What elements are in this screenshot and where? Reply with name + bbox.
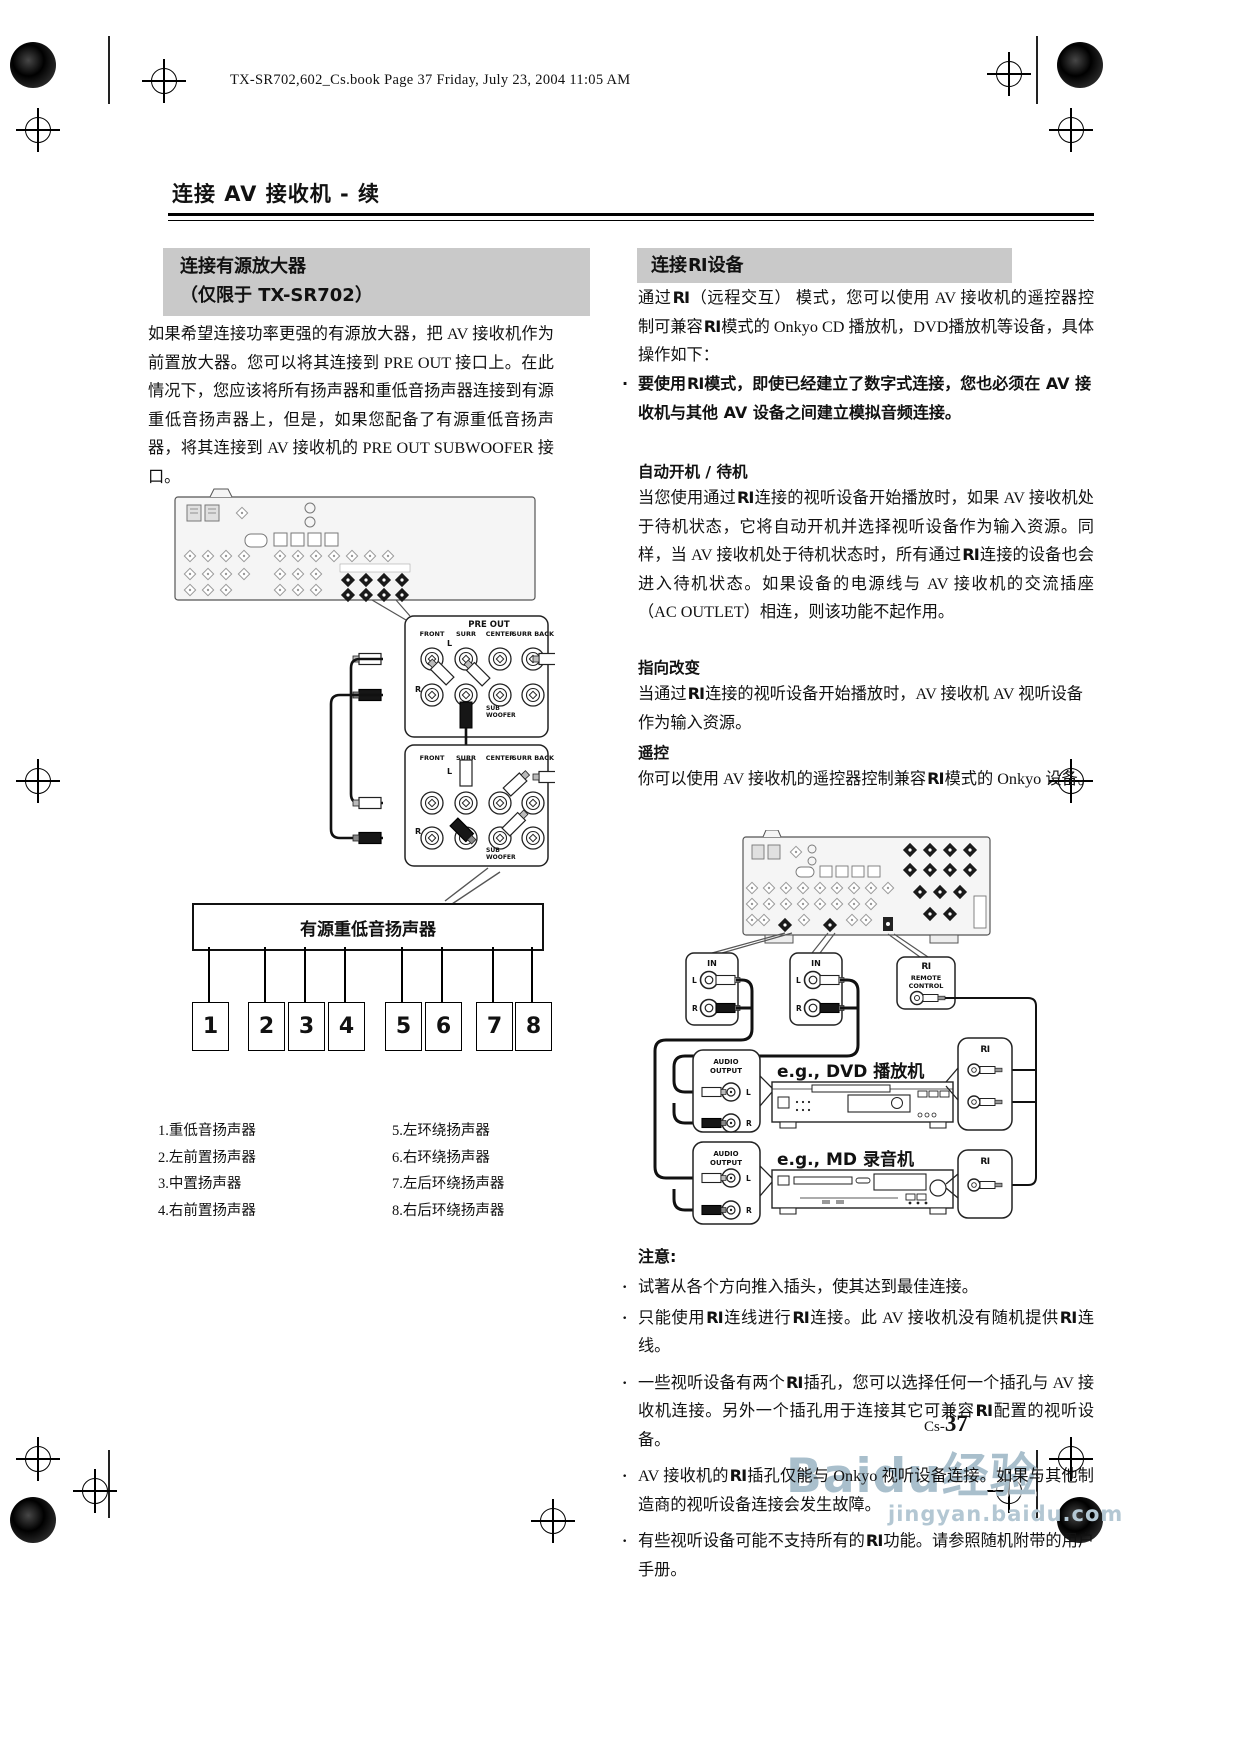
speaker-wire (401, 947, 403, 1002)
ri-callout-md: RI (946, 1150, 1012, 1218)
registration-disk-top-left (10, 42, 56, 88)
audio-in-callout-2: IN L R (790, 953, 844, 1025)
section-heading-left: 连接有源放大器 （仅限于 TX-SR702） (163, 248, 590, 316)
svg-text:FRONT: FRONT (420, 630, 445, 638)
speaker-wire (492, 947, 494, 1002)
ri-remote-control-callout: RI REMOTE CONTROL (897, 957, 955, 1009)
note-item: 试著从各个方向推入插头，使其达到最佳连接。 (620, 1273, 1094, 1302)
legend-item: 5.左环绕扬声器 (392, 1118, 504, 1145)
svg-text:SUB: SUB (486, 705, 500, 712)
powered-subwoofer-box: 有源重低音扬声器 (192, 903, 544, 951)
svg-text:R: R (415, 827, 421, 836)
svg-text:L: L (692, 976, 697, 985)
subsection-title-remote: 遥控 (638, 741, 669, 763)
note-item: 一些视听设备有两个RI插孔，您可以选择任何一个插孔与 AV 接收机连接。另外一个… (620, 1369, 1094, 1455)
svg-text:R: R (415, 685, 421, 694)
registration-target-icon (987, 52, 1031, 96)
svg-text:IN: IN (811, 959, 821, 968)
svg-text:SURR: SURR (456, 630, 476, 638)
note-item: 只能使用RI连线进行RI连接。此 AV 接收机没有随机提供RI连线。 (620, 1304, 1094, 1361)
speaker-wire (208, 947, 210, 1002)
legend-item: 8.右后环绕扬声器 (392, 1198, 504, 1225)
audio-output-callout-md: AUDIO OUTPUT L R (693, 1142, 772, 1224)
section-heading-line1: 连接有源放大器 (163, 252, 590, 281)
page-title: 连接 AV 接收机 - 续 (172, 178, 380, 208)
registration-target-icon (531, 1499, 575, 1543)
legend-item: 1.重低音扬声器 (158, 1118, 256, 1145)
svg-text:L: L (447, 639, 452, 648)
speaker-legend-col2: 5.左环绕扬声器 6.右环绕扬声器 7.左后环绕扬声器 8.右后环绕扬声器 (392, 1118, 504, 1224)
speaker-wire (441, 947, 443, 1002)
page-number: Cs-37 (924, 1411, 968, 1437)
svg-text:OUTPUT: OUTPUT (710, 1159, 742, 1167)
speaker-box-5: 5 (385, 1002, 422, 1051)
ri-bold-note: 要使用RI模式，即使已经建立了数字式连接，您也必须在 AV 接收机与其他 AV … (620, 370, 1098, 427)
section-heading-line2: （仅限于 TX-SR702） (163, 281, 590, 310)
title-rule-thin (168, 220, 1094, 221)
registration-disk-top-right (1057, 42, 1103, 88)
speaker-box-3: 3 (288, 1002, 325, 1051)
md-recorder-label: e.g., MD 录音机 (777, 1149, 914, 1170)
svg-text:RI: RI (980, 1157, 989, 1167)
registration-target-icon (73, 1469, 117, 1513)
svg-text:L: L (796, 976, 801, 985)
md-recorder-drawing (772, 1170, 953, 1214)
speaker-box-1: 1 (192, 1002, 229, 1051)
speaker-wire (304, 947, 306, 1002)
svg-text:CENTER: CENTER (486, 754, 515, 762)
svg-text:PRE OUT: PRE OUT (468, 620, 510, 630)
manual-page: Baidu经验 jingyan.baidu.com TX-SR702,602_C… (0, 0, 1240, 1754)
registration-target-icon (16, 108, 60, 152)
svg-text:RI: RI (980, 1045, 989, 1055)
svg-text:SURR BACK: SURR BACK (512, 630, 555, 638)
subwoofer-input-callout: FRONT SURR CENTER SURR BACK L R SUB WOOF… (353, 745, 555, 866)
preout-callout-receiver: PRE OUT FRONT SURR CENTER SURR BACK L R … (353, 616, 555, 737)
registration-target-icon (142, 59, 186, 103)
subsection-text-direction-change: 当通过RI连接的视听设备开始播放时，AV 接收机 AV 视听设备作为输入资源。 (638, 680, 1094, 737)
speaker-wire (531, 947, 533, 1002)
svg-text:L: L (746, 1088, 751, 1097)
preout-connection-diagram: PRE OUT FRONT SURR CENTER SURR BACK L R … (150, 438, 555, 908)
registration-target-icon (1049, 108, 1093, 152)
speaker-legend-col1: 1.重低音扬声器 2.左前置扬声器 3.中置扬声器 4.右前置扬声器 (158, 1118, 256, 1224)
svg-text:FRONT: FRONT (420, 754, 445, 762)
ri-callout-dvd: RI (946, 1038, 1012, 1130)
title-rule-thick (168, 213, 1094, 216)
note-item: 有些视听设备可能不支持所有的RI功能。请参照随机附带的用户手册。 (620, 1527, 1094, 1584)
section-heading-right: 连接RI设备 (637, 248, 1012, 283)
svg-text:REMOTE: REMOTE (911, 974, 941, 982)
legend-item: 6.右环绕扬声器 (392, 1145, 504, 1172)
crop-line (108, 36, 110, 104)
audio-output-callout-dvd: AUDIO OUTPUT L R (693, 1050, 772, 1132)
svg-text:IN: IN (707, 959, 717, 968)
receiver-rear-panel (175, 489, 535, 602)
subsection-text-auto-power: 当您使用通过RI连接的视听设备开始播放时，如果 AV 接收机处于待机状态，它将自… (638, 484, 1094, 627)
svg-text:CONTROL: CONTROL (909, 982, 944, 990)
legend-item: 7.左后环绕扬声器 (392, 1171, 504, 1198)
audio-in-callout-1: IN L R (686, 953, 740, 1025)
svg-text:L: L (746, 1174, 751, 1183)
registration-disk-bottom-left (10, 1497, 56, 1543)
svg-text:L: L (447, 767, 452, 776)
speaker-box-6: 6 (425, 1002, 462, 1051)
subsection-title-direction-change: 指向改变 (638, 656, 700, 678)
registration-target-icon (16, 1437, 60, 1481)
section-heading-text: 连接RI设备 (637, 255, 744, 276)
svg-text:R: R (746, 1119, 752, 1128)
legend-item: 3.中置扬声器 (158, 1171, 256, 1198)
ri-connection-diagram: IN L R IN L R RI REMOTE CONTROL (600, 830, 1060, 1242)
subsection-text-remote: 你可以使用 AV 接收机的遥控器控制兼容RI模式的 Onkyo 设备。 (638, 765, 1094, 794)
svg-text:SUB: SUB (486, 847, 500, 854)
svg-text:AUDIO: AUDIO (713, 1150, 738, 1158)
registration-target-icon (16, 759, 60, 803)
page-number-prefix: Cs- (924, 1419, 945, 1435)
svg-text:WOOFER: WOOFER (486, 854, 516, 861)
notes-section: 注意: 试著从各个方向推入插头，使其达到最佳连接。 只能使用RI连线进行RI连接… (620, 1243, 1094, 1584)
speaker-box-7: 7 (476, 1002, 513, 1051)
svg-text:R: R (746, 1206, 752, 1215)
svg-text:SURR BACK: SURR BACK (512, 754, 555, 762)
speaker-wire (264, 947, 266, 1002)
crop-line (1036, 36, 1038, 104)
callout-pointer (445, 868, 500, 904)
speaker-wire (344, 947, 346, 1002)
svg-text:OUTPUT: OUTPUT (710, 1067, 742, 1075)
file-info-header: TX-SR702,602_Cs.book Page 37 Friday, Jul… (230, 72, 630, 89)
svg-text:R: R (692, 1004, 698, 1013)
note-item: AV 接收机的RI插孔仅能与 Onkyo 视听设备连接。如果与其他制造商的视听设… (620, 1462, 1094, 1519)
speaker-box-4: 4 (328, 1002, 365, 1051)
speaker-box-8: 8 (515, 1002, 552, 1051)
svg-text:R: R (796, 1004, 802, 1013)
svg-text:CENTER: CENTER (486, 630, 515, 638)
ri-intro-paragraph: 通过RI（远程交互） 模式，您可以使用 AV 接收机的遥控器控制可兼容RI模式的… (638, 284, 1094, 370)
speaker-box-2: 2 (248, 1002, 285, 1051)
legend-item: 2.左前置扬声器 (158, 1145, 256, 1172)
svg-text:AUDIO: AUDIO (713, 1058, 738, 1066)
svg-text:WOOFER: WOOFER (486, 712, 516, 719)
callout-pointer (372, 600, 410, 620)
dvd-player-label: e.g., DVD 播放机 (777, 1061, 924, 1082)
svg-text:RI: RI (921, 962, 930, 972)
dvd-player-drawing (772, 1082, 953, 1128)
subsection-title-auto-power: 自动开机 / 待机 (638, 460, 747, 482)
page-number-value: 37 (945, 1411, 968, 1436)
legend-item: 4.右前置扬声器 (158, 1198, 256, 1225)
receiver-rear-panel-small (743, 830, 990, 943)
notes-title: 注意: (620, 1243, 1094, 1267)
